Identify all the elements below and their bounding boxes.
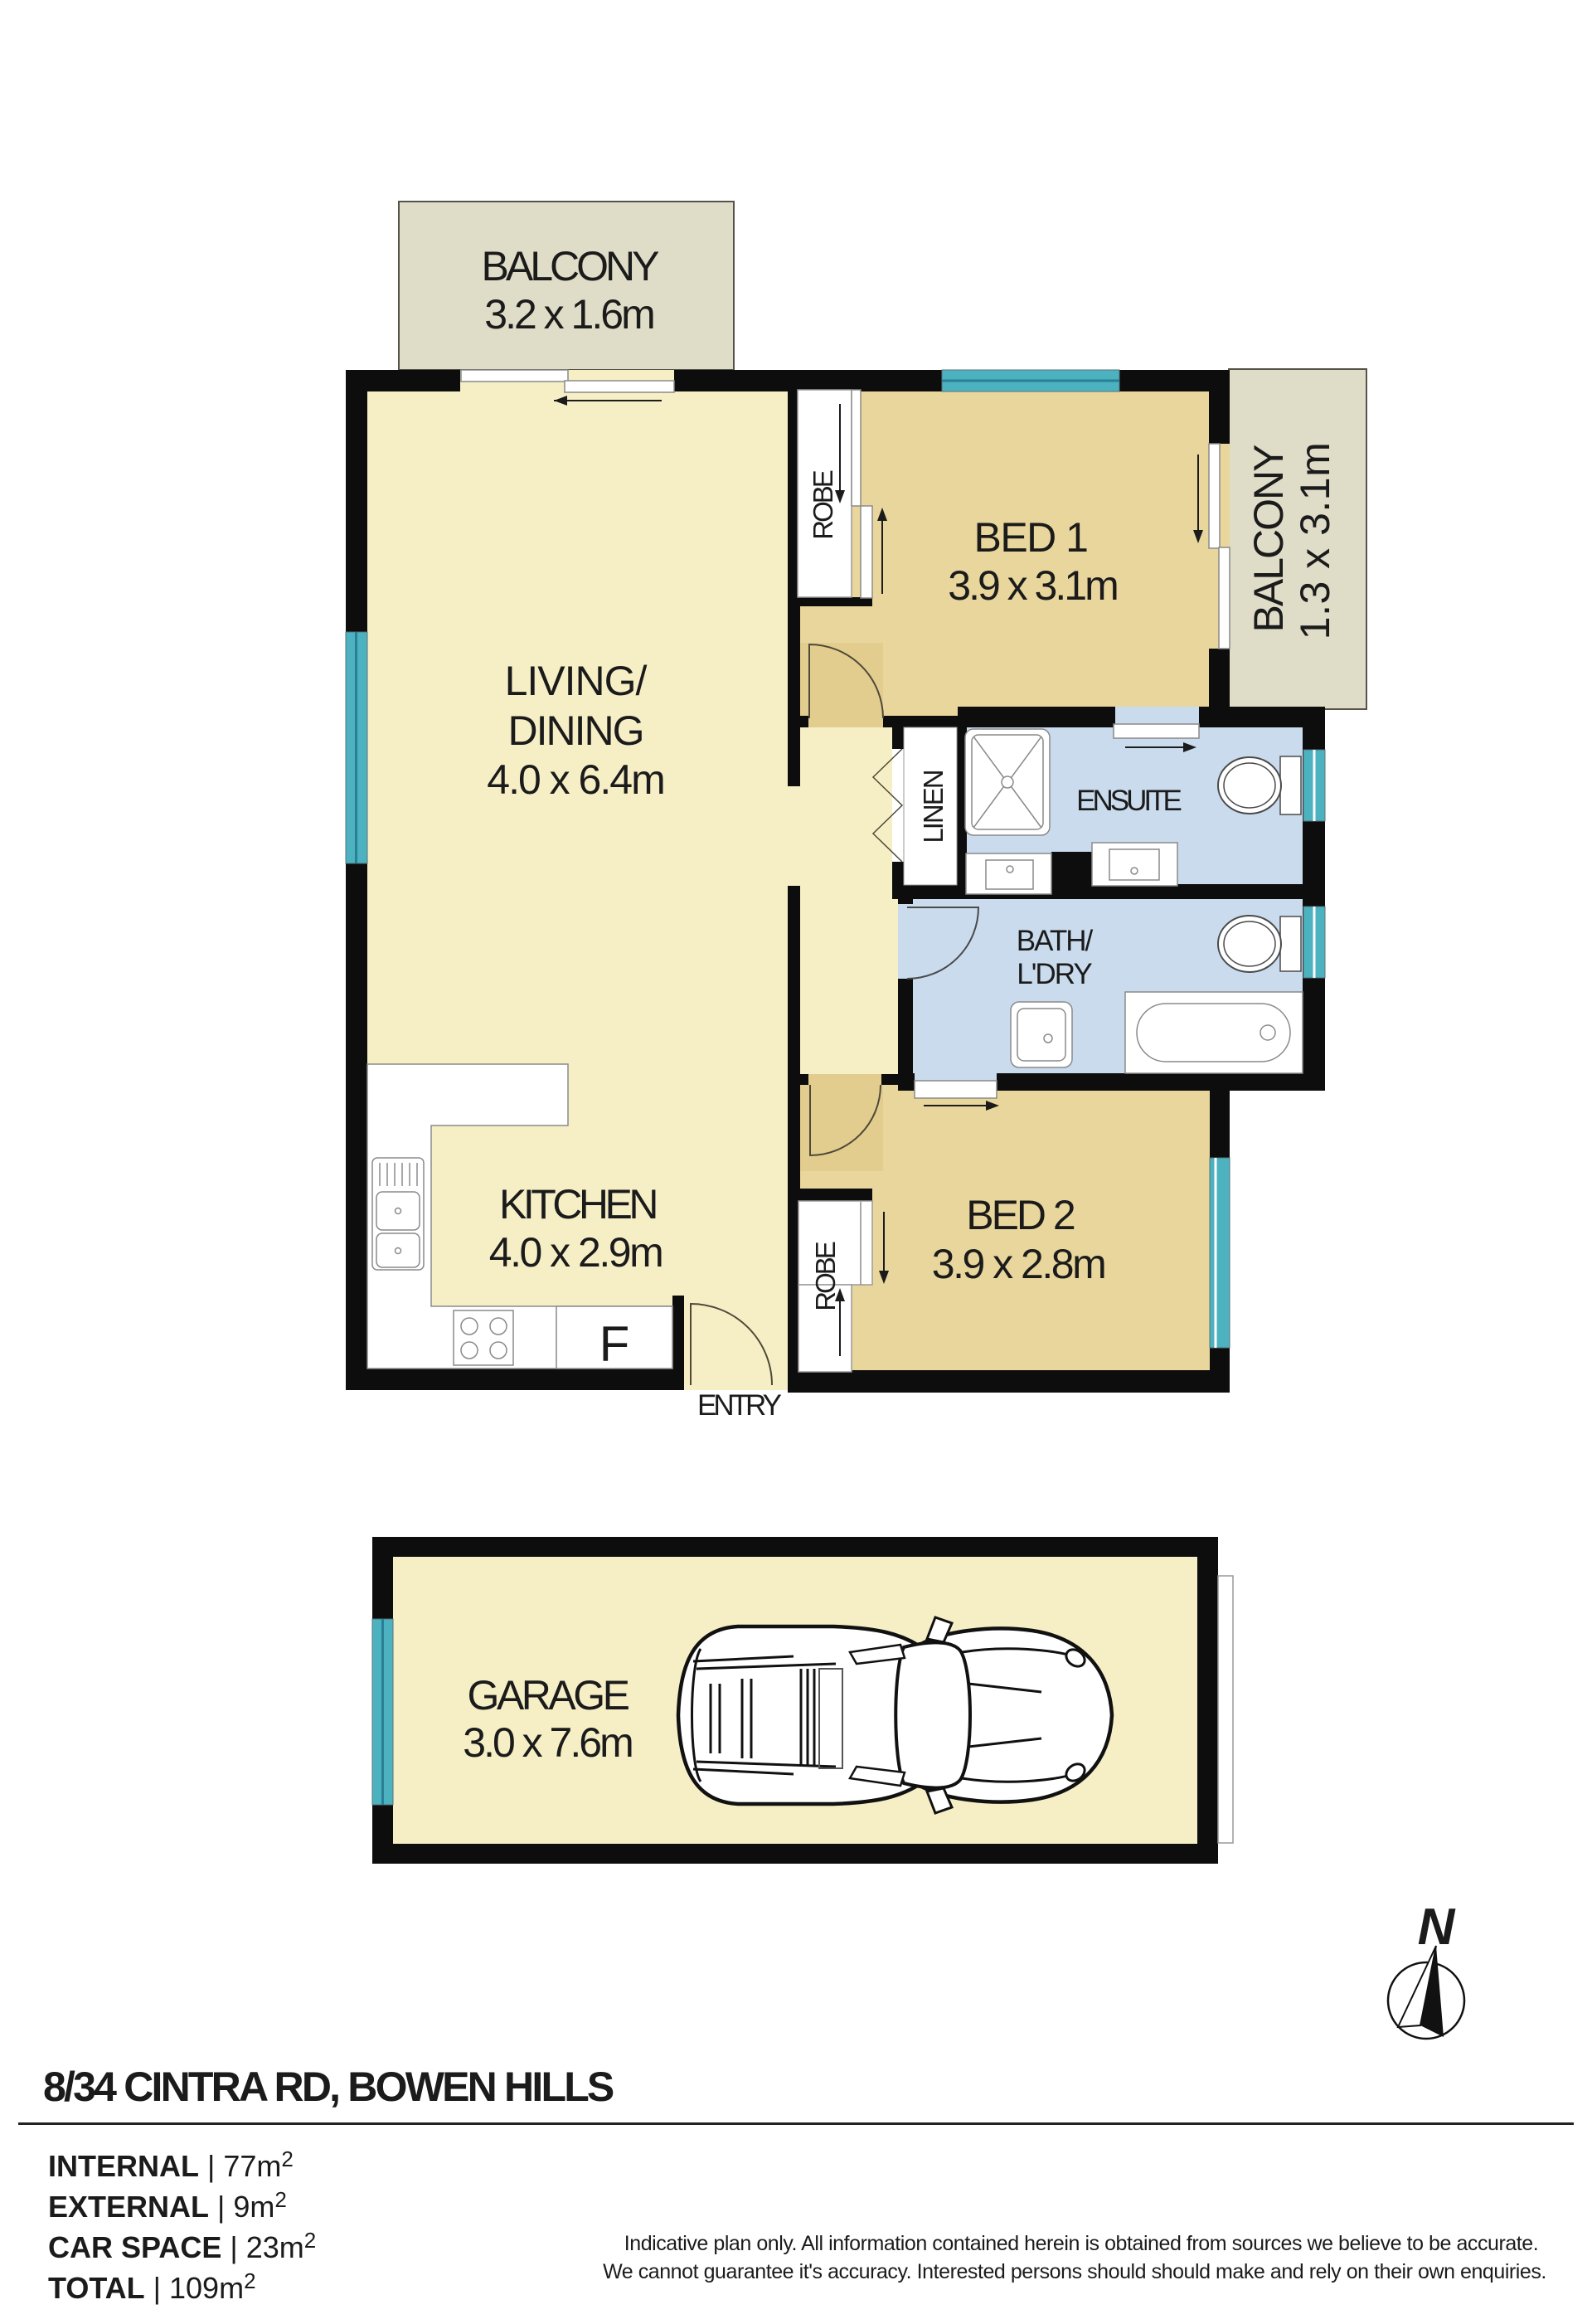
svg-text:BED 2: BED 2 bbox=[966, 1192, 1075, 1238]
svg-text:3.9 x 3.1m: 3.9 x 3.1m bbox=[948, 562, 1117, 609]
svg-text:LIVING/: LIVING/ bbox=[505, 658, 648, 704]
svg-text:ROBE: ROBE bbox=[810, 1242, 841, 1311]
svg-text:F: F bbox=[599, 1316, 630, 1372]
svg-text:1.3 x 3.1m: 1.3 x 3.1m bbox=[1292, 442, 1338, 639]
svg-text:We cannot guarantee it's accur: We cannot guarantee it's accuracy. Inter… bbox=[603, 2260, 1546, 2283]
svg-text:L'DRY: L'DRY bbox=[1017, 958, 1092, 990]
svg-text:EXTERNAL | 9m2: EXTERNAL | 9m2 bbox=[48, 2187, 287, 2224]
svg-text:4.0 x 2.9m: 4.0 x 2.9m bbox=[489, 1229, 662, 1276]
svg-text:BATH/: BATH/ bbox=[1017, 925, 1094, 957]
svg-text:TOTAL | 109m2: TOTAL | 109m2 bbox=[48, 2268, 256, 2305]
svg-text:BALCONY: BALCONY bbox=[1245, 445, 1292, 633]
svg-text:GARAGE: GARAGE bbox=[468, 1672, 629, 1719]
svg-text:BED 1: BED 1 bbox=[973, 514, 1087, 561]
svg-text:ENSUITE: ENSUITE bbox=[1076, 785, 1181, 817]
svg-text:INTERNAL | 77m2: INTERNAL | 77m2 bbox=[48, 2147, 294, 2183]
svg-text:ROBE: ROBE bbox=[808, 470, 838, 540]
svg-text:3.0 x 7.6m: 3.0 x 7.6m bbox=[463, 1719, 632, 1766]
svg-text:3.9 x 2.8m: 3.9 x 2.8m bbox=[932, 1241, 1104, 1287]
svg-text:DINING: DINING bbox=[508, 707, 643, 754]
svg-text:LINEN: LINEN bbox=[918, 771, 949, 843]
svg-text:Indicative plan only. All info: Indicative plan only. All information co… bbox=[624, 2232, 1539, 2255]
svg-text:4.0 x 6.4m: 4.0 x 6.4m bbox=[487, 756, 663, 803]
svg-text:3.2 x 1.6m: 3.2 x 1.6m bbox=[484, 291, 653, 338]
svg-text:KITCHEN: KITCHEN bbox=[499, 1181, 656, 1228]
svg-text:ENTRY: ENTRY bbox=[697, 1389, 782, 1422]
svg-text:CAR SPACE | 23m2: CAR SPACE | 23m2 bbox=[48, 2228, 316, 2264]
svg-text:BALCONY: BALCONY bbox=[482, 243, 660, 289]
svg-text:8/34 CINTRA RD, BOWEN HILLS: 8/34 CINTRA RD, BOWEN HILLS bbox=[43, 2064, 614, 2110]
